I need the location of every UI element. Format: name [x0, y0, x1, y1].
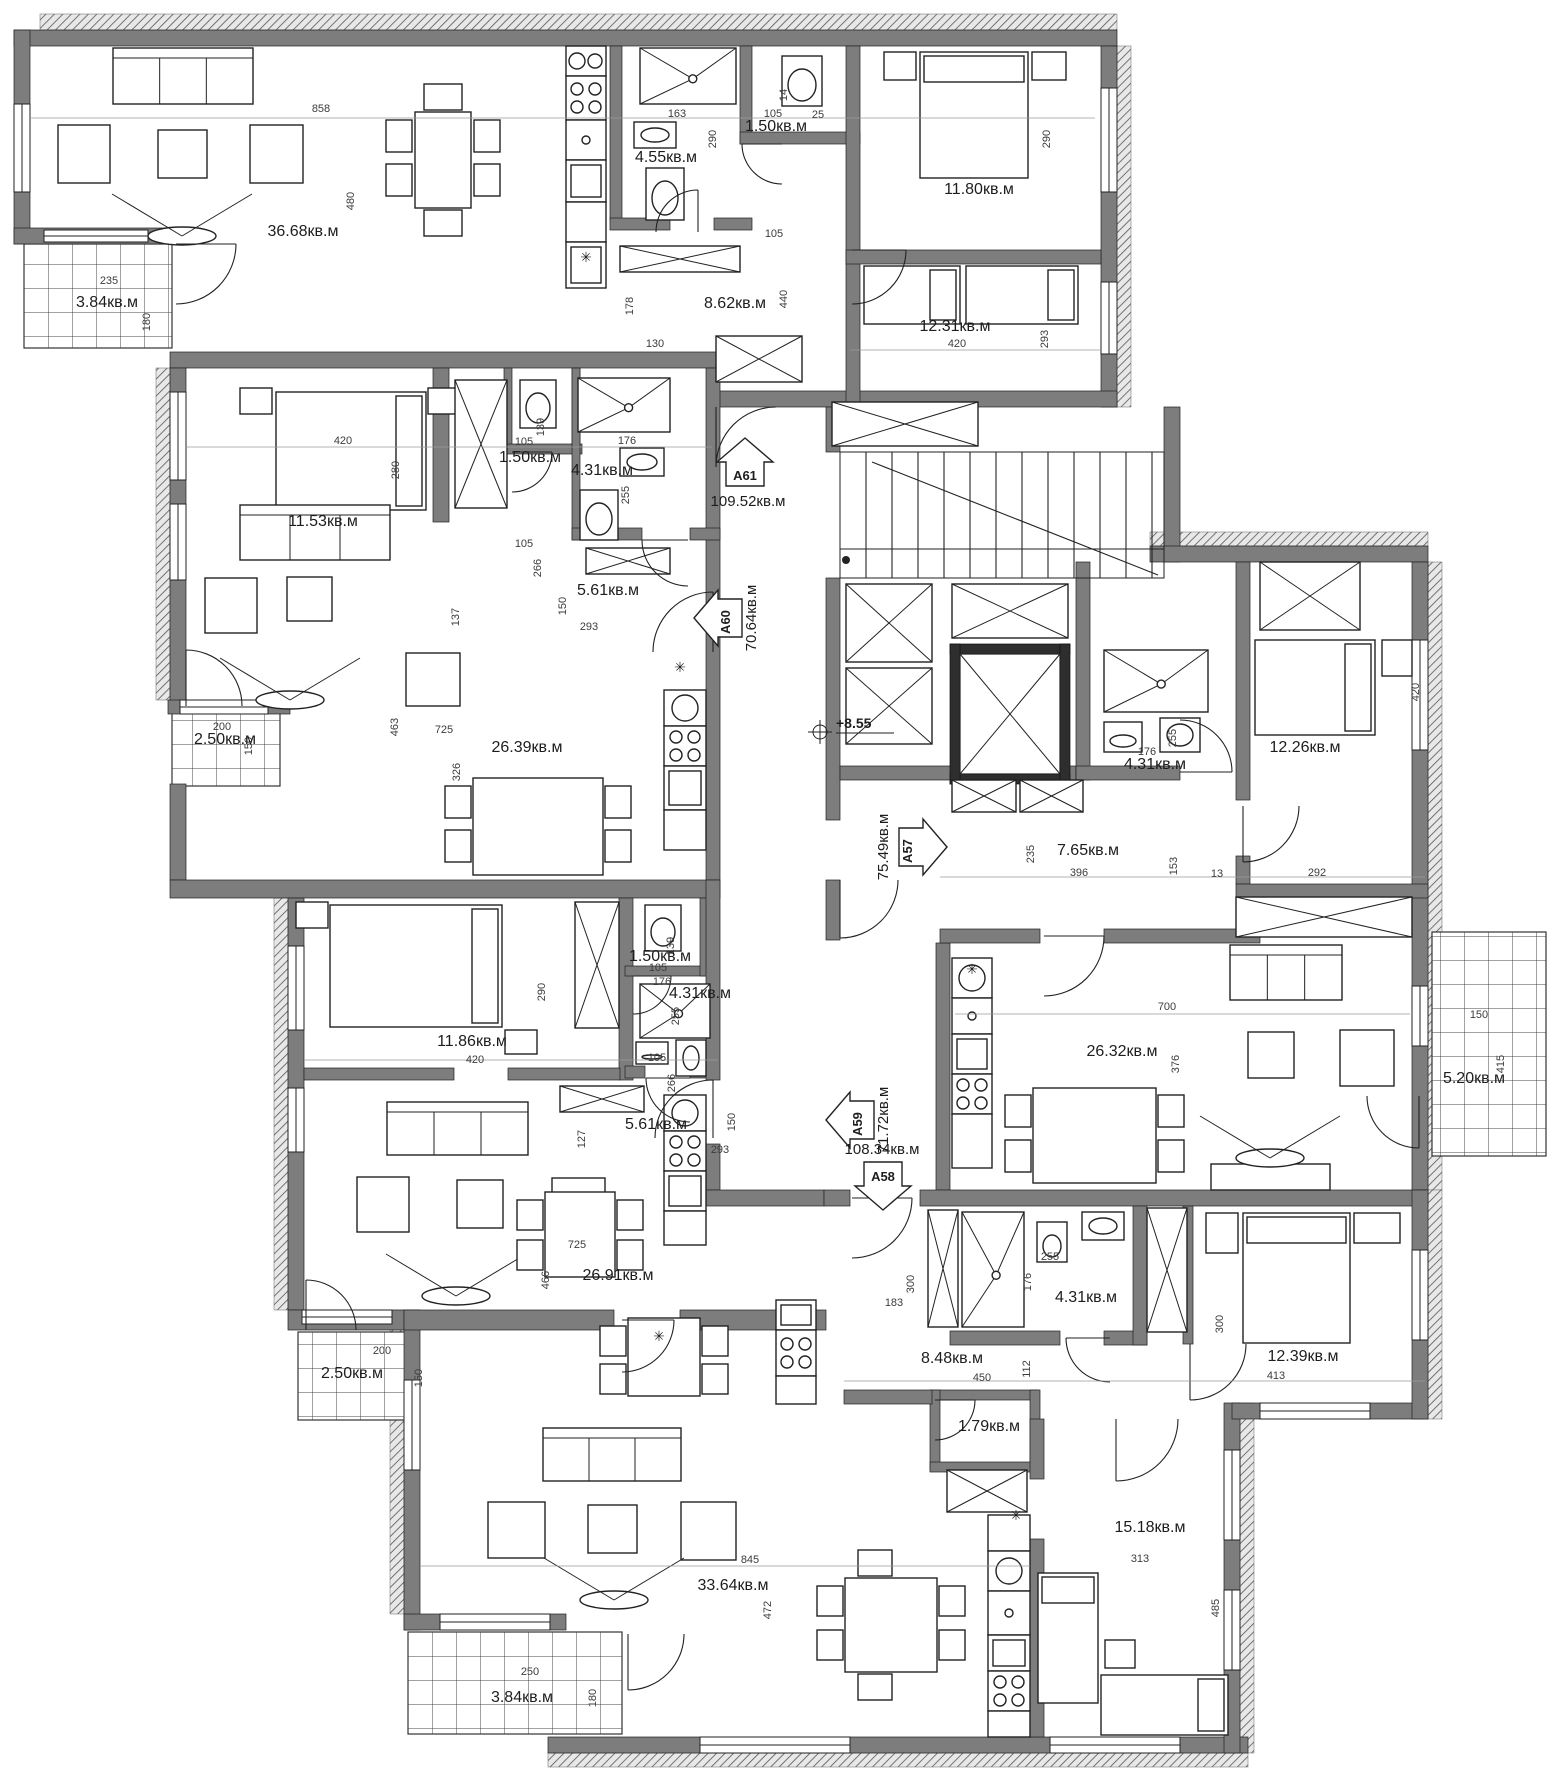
dimension-label: 292 — [1308, 867, 1326, 879]
kitchen-unit — [664, 726, 706, 766]
room-area-label: 4.31кв.м — [571, 462, 633, 479]
dimension-label: 293 — [1039, 330, 1051, 348]
chair — [1158, 1140, 1184, 1172]
dimension-label: 183 — [885, 1297, 903, 1309]
kitchen-unit — [988, 1515, 1030, 1551]
kitchen-unit — [988, 1671, 1030, 1711]
room-area-label: 2.50кв.м — [321, 1365, 383, 1382]
fixture-star-icon: ✳ — [580, 249, 592, 265]
chair — [445, 786, 471, 818]
floor-plan-drawing: A61 109.52кв.м A60 70.64кв.м A57 75.49кв… — [0, 0, 1556, 1790]
pillow — [924, 56, 1024, 82]
kitchen-unit — [776, 1330, 816, 1376]
door-swing — [186, 650, 242, 706]
door-swing — [1367, 1096, 1419, 1148]
dimension-label: 700 — [1158, 1001, 1176, 1013]
dimension-label: 420 — [948, 338, 966, 350]
chair — [474, 120, 500, 152]
chair — [445, 830, 471, 862]
dimension-label: 13 — [1211, 868, 1223, 880]
chair — [600, 1364, 626, 1394]
dimension-label: 105 — [648, 1052, 666, 1064]
apartment-area: 70.64кв.м — [743, 585, 760, 652]
dimension-label: 139 — [535, 418, 547, 436]
door-swing — [1066, 1338, 1110, 1382]
armchair — [357, 1177, 409, 1232]
armchair — [58, 125, 110, 183]
level-value: +8.55 — [836, 715, 872, 731]
dining-table — [545, 1192, 615, 1277]
dimension-label: 200 — [373, 1345, 391, 1357]
nightstand — [505, 1030, 537, 1054]
dining-table — [473, 778, 603, 875]
room-area-label: 3.84кв.м — [491, 1689, 553, 1706]
dimension-label: 255 — [1167, 729, 1179, 747]
chair — [939, 1586, 965, 1616]
apartment-area: 108.34кв.м — [845, 1141, 920, 1158]
pillow — [930, 270, 956, 320]
dimension-label: 440 — [778, 290, 790, 308]
elevator-shaft — [950, 644, 1070, 784]
dimension-label: 290 — [536, 983, 548, 1001]
fixture-star-icon: ✳ — [966, 961, 978, 977]
dimension-label: 300 — [1214, 1315, 1226, 1333]
room-area-label: 11.80кв.м — [944, 181, 1014, 198]
chair — [858, 1550, 892, 1576]
dimension-label: 858 — [312, 103, 330, 115]
chair — [386, 164, 412, 196]
armchair — [681, 1502, 736, 1560]
sofa — [387, 1102, 528, 1155]
chair — [605, 786, 631, 818]
dining-table — [845, 1578, 937, 1672]
room-area-label: 26.39кв.м — [492, 739, 563, 756]
door-swing — [742, 144, 782, 184]
pillow — [1198, 1679, 1224, 1731]
walls — [14, 30, 1428, 1753]
pillow — [1042, 1577, 1094, 1603]
chair — [474, 164, 500, 196]
apartment-id: A59 — [850, 1112, 865, 1136]
dimension-label: 163 — [668, 108, 686, 120]
kitchen-unit — [952, 1074, 992, 1114]
room-area-label: 4.31кв.м — [1124, 756, 1186, 773]
dimension-label: 280 — [390, 461, 402, 479]
apartment-id: A58 — [871, 1169, 895, 1184]
armchair — [205, 578, 257, 633]
room-area-label: 11.53кв.м — [288, 513, 358, 530]
room-area-label: 8.48кв.м — [921, 1350, 983, 1367]
dining-table — [1033, 1088, 1156, 1183]
dimension-label: 235 — [100, 275, 118, 287]
dimension-label: 150 — [413, 1369, 425, 1387]
pillow — [472, 909, 498, 1023]
room-area-label: 5.61кв.м — [577, 582, 639, 599]
room-area-label: 4.31кв.м — [1055, 1289, 1117, 1306]
dimension-label: 266 — [532, 559, 544, 577]
dimension-label: 250 — [521, 1666, 539, 1678]
chair — [617, 1200, 643, 1230]
sofa — [543, 1428, 681, 1481]
chair — [517, 1240, 543, 1270]
chair — [600, 1326, 626, 1356]
room-area-label: 12.31кв.м — [920, 318, 991, 335]
room-area-label: 26.91кв.м — [583, 1267, 654, 1284]
dimension-label: 293 — [580, 621, 598, 633]
room-area-label: 1.79кв.м — [958, 1418, 1020, 1435]
nightstand — [1105, 1640, 1135, 1668]
dimension-label: 176 — [618, 435, 636, 447]
dimension-label: 153 — [1168, 857, 1180, 875]
coffee-table — [457, 1180, 503, 1228]
dimension-label: 14 — [778, 89, 790, 101]
oven — [957, 1039, 987, 1069]
dimension-label: 150 — [557, 597, 569, 615]
coffee-table — [1248, 1032, 1294, 1078]
room-area-label: 4.31кв.м — [669, 985, 731, 1002]
apartment-entry-A61: A61 109.52кв.м — [711, 438, 786, 510]
door-swing — [1044, 936, 1104, 996]
dimension-label: 105 — [515, 436, 533, 448]
dimension-label: 420 — [1410, 683, 1422, 701]
kitchen-unit — [664, 810, 706, 850]
dimension-label: 235 — [1025, 845, 1037, 863]
oven — [571, 165, 601, 197]
dimension-label: 420 — [334, 435, 352, 447]
room-area-label: 1.50кв.м — [499, 449, 561, 466]
kitchen-unit — [566, 76, 606, 120]
nightstand — [296, 902, 328, 928]
dimension-label: 300 — [905, 1275, 917, 1293]
chair — [817, 1586, 843, 1616]
room-area-label: 12.26кв.м — [1270, 739, 1341, 756]
oven — [669, 1176, 701, 1206]
fixture-star-icon: ✳ — [674, 659, 686, 675]
door-swing — [176, 244, 236, 304]
apartment-id: A57 — [900, 839, 915, 863]
dimension-label: 450 — [973, 1372, 991, 1384]
dimension-label: 326 — [451, 763, 463, 781]
armchair — [406, 653, 460, 706]
kitchen-unit — [776, 1376, 816, 1404]
dimension-label: 293 — [711, 1144, 729, 1156]
dimension-label: 466 — [540, 1271, 552, 1289]
chair — [858, 1674, 892, 1700]
chair — [517, 1200, 543, 1230]
dimension-label: 845 — [741, 1554, 759, 1566]
chair — [424, 210, 462, 236]
room-area-label: 7.65кв.м — [1057, 842, 1119, 859]
apartment-entry-A58: A58 108.34кв.м — [845, 1141, 920, 1210]
dining-table — [415, 112, 471, 208]
staircase — [840, 452, 1164, 578]
chair — [817, 1630, 843, 1660]
dimension-label: 178 — [624, 297, 636, 315]
dimension-label: 376 — [1170, 1055, 1182, 1073]
dimension-label: 463 — [389, 718, 401, 736]
nightstand — [1206, 1213, 1238, 1253]
room-area-label: 5.61кв.м — [625, 1116, 687, 1133]
apartment-id: A61 — [733, 468, 757, 483]
fixture-star-icon: ✳ — [1010, 1507, 1022, 1523]
kitchen-unit — [988, 1711, 1030, 1737]
door-swing — [840, 880, 898, 938]
room-area-label: 3.84кв.м — [76, 294, 138, 311]
chair — [702, 1326, 728, 1356]
chair — [702, 1364, 728, 1394]
dimension-label: 290 — [707, 130, 719, 148]
dimension-label: 150 — [726, 1113, 738, 1131]
apartment-area: 109.52кв.м — [711, 493, 786, 510]
nightstand — [1354, 1213, 1400, 1243]
dimension-label: 290 — [1041, 130, 1053, 148]
dimension-label: 725 — [568, 1239, 586, 1251]
dimension-label: 485 — [1210, 1599, 1222, 1617]
nightstand — [1382, 640, 1412, 676]
room-area-label: 15.18кв.м — [1115, 1519, 1186, 1536]
fixture-star-icon: ✳ — [653, 1328, 665, 1344]
room-area-label: 4.55кв.м — [635, 149, 697, 166]
dimension-label: 420 — [466, 1054, 484, 1066]
dimension-label: 472 — [762, 1601, 774, 1619]
coffee-table — [287, 577, 332, 621]
room-area-label: 5.20кв.м — [1443, 1070, 1505, 1087]
room-area-label: 12.39кв.м — [1268, 1348, 1339, 1365]
chair — [617, 1240, 643, 1270]
chair — [939, 1630, 965, 1660]
dimension-label: 413 — [1267, 1370, 1285, 1382]
dimension-label: 266 — [666, 1074, 678, 1092]
chair — [605, 830, 631, 862]
room-area-label: 33.64кв.м — [698, 1577, 769, 1594]
apartment-id: A60 — [718, 610, 733, 634]
door-swing — [1243, 806, 1299, 862]
chair — [424, 84, 462, 110]
room-area-label: 1.50кв.м — [629, 948, 691, 965]
chair — [1005, 1140, 1031, 1172]
kitchen-unit — [664, 1131, 706, 1171]
chair — [386, 120, 412, 152]
nightstand — [1032, 52, 1066, 80]
pillow — [1247, 1217, 1346, 1243]
dimension-label: 180 — [141, 313, 153, 331]
dimension-label: 25 — [812, 109, 824, 121]
dimension-label: 255 — [620, 486, 632, 504]
dimension-label: 150 — [1470, 1009, 1488, 1021]
room-area-label: 1.50кв.м — [745, 118, 807, 135]
coffee-table — [588, 1505, 637, 1553]
dimension-label: 255 — [1041, 1251, 1059, 1263]
tv-board — [1211, 1164, 1330, 1190]
dimension-label: 313 — [1131, 1553, 1149, 1565]
door-swing — [628, 1634, 684, 1690]
kitchen-unit — [566, 202, 606, 242]
oven — [669, 771, 701, 805]
apartment-entry-A60: A60 70.64кв.м — [694, 585, 760, 652]
dimension-label: 105 — [515, 538, 533, 550]
apartment-entry-A57: A57 75.49кв.м — [875, 814, 947, 881]
sofa — [113, 48, 253, 104]
dimension-label: 127 — [576, 1130, 588, 1148]
door-swing — [1116, 1419, 1178, 1481]
dimension-label: 105 — [765, 228, 783, 240]
chair — [1158, 1095, 1184, 1127]
sofa — [1230, 945, 1342, 1000]
dimension-label: 396 — [1070, 867, 1088, 879]
armchair — [1340, 1030, 1394, 1086]
nightstand — [884, 52, 916, 80]
room-area-label: 36.68кв.м — [268, 223, 339, 240]
door-swing — [1190, 1344, 1246, 1400]
room-area-label: 11.86кв.м — [437, 1033, 507, 1050]
room-area-label: 2.50кв.м — [194, 731, 256, 748]
chair — [1005, 1095, 1031, 1127]
dimension-label: 176 — [1022, 1273, 1034, 1291]
oven — [993, 1640, 1025, 1666]
room-area-label: 8.62кв.м — [704, 295, 766, 312]
kitchen-unit — [664, 1211, 706, 1245]
pillow — [1048, 270, 1074, 320]
nightstand — [240, 388, 272, 414]
dimension-label: 255 — [670, 1007, 682, 1025]
dimension-label: 137 — [450, 608, 462, 626]
kitchen-unit — [952, 1114, 992, 1168]
pillow — [1345, 644, 1371, 731]
pillow — [396, 396, 422, 506]
dimension-label: 180 — [587, 1689, 599, 1707]
armchair — [488, 1502, 545, 1558]
dimension-label: 480 — [345, 192, 357, 210]
dimension-label: 112 — [1021, 1360, 1033, 1378]
coffee-table — [158, 130, 207, 178]
dimension-label: 130 — [646, 338, 664, 350]
armchair — [250, 125, 303, 183]
oven — [781, 1305, 811, 1325]
apartment-area: 75.49кв.м — [875, 814, 892, 881]
room-area-label: 26.32кв.м — [1087, 1043, 1158, 1060]
dimension-label: 725 — [435, 724, 453, 736]
